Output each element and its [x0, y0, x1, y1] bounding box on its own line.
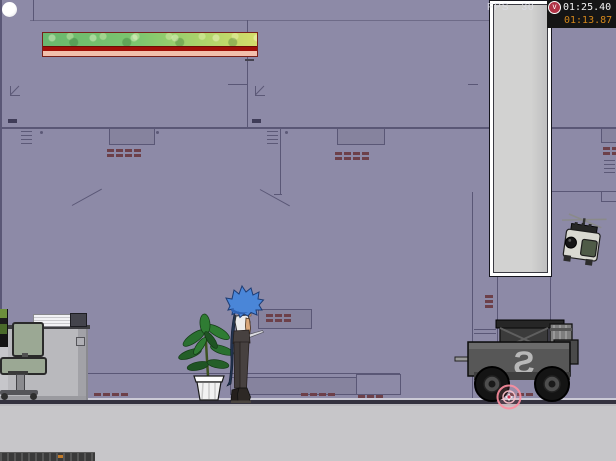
- panel-corner-bracket: [255, 86, 265, 96]
- health-bar-tick: [245, 59, 254, 61]
- wall-recessed-panel: [109, 128, 155, 145]
- wall-vent: [107, 149, 141, 152]
- knife-blade: [249, 331, 264, 338]
- panel-dash: [8, 119, 17, 123]
- hover-drone: [557, 213, 607, 267]
- chair-castor: [30, 393, 37, 400]
- edge-canister: [0, 309, 8, 347]
- conveyor-indicator: [58, 455, 63, 458]
- timer-panel: v 01:25.40 01:13.87: [547, 0, 616, 28]
- player-front-shoe: [238, 388, 251, 402]
- desk-panel-detail: [76, 337, 85, 346]
- clock-toggle-icon[interactable]: v: [548, 1, 561, 14]
- cart-wheel: [535, 367, 569, 401]
- wall-seam: [280, 129, 281, 195]
- wall-seam: [33, 0, 34, 21]
- panel-tick: [468, 84, 478, 85]
- light-column-inner: [493, 4, 548, 273]
- wall-vent: [335, 157, 369, 160]
- game-viewport[interactable]: S FPS30 v 01:25.40 01:13.87: [0, 0, 616, 461]
- wall-recessed-panel: [337, 128, 385, 145]
- wall-vent: [603, 152, 616, 155]
- wall-vent: [603, 147, 616, 150]
- drone-foot: [563, 255, 571, 262]
- wall-vent: [485, 295, 493, 308]
- drone-foot: [585, 259, 593, 266]
- conveyor-strip: [0, 452, 95, 461]
- fps-label: FPS: [487, 2, 509, 13]
- wall-vent: [107, 154, 141, 157]
- wall-notch: [356, 374, 401, 395]
- wall-vent: [335, 152, 369, 155]
- wall-vent: [94, 393, 128, 396]
- player-character: [218, 284, 266, 404]
- wall-notch: [601, 191, 616, 202]
- health-bar-fill: [43, 33, 257, 46]
- panel-dash: [252, 119, 261, 123]
- wall-recessed-panel: [601, 128, 616, 143]
- white-ball: [2, 2, 17, 17]
- wall-grille: [604, 160, 615, 174]
- office-chair-backrest: [12, 322, 44, 357]
- wall-vent: [301, 393, 335, 396]
- chair-castor: [1, 393, 8, 400]
- light-column: [489, 0, 552, 277]
- panel-rivet: [40, 131, 43, 134]
- player-hips: [233, 330, 250, 344]
- timer-primary: 01:25.40: [563, 2, 611, 13]
- target-reticle-icon: [495, 383, 523, 411]
- player-front-leg: [240, 342, 249, 388]
- panel-rivet: [285, 131, 288, 134]
- desk-book: [70, 313, 87, 327]
- wall-grille: [21, 131, 32, 145]
- panel-corner-bracket: [10, 86, 20, 96]
- health-bar: [42, 32, 258, 57]
- panel-tick: [228, 84, 248, 85]
- health-bar-red-stripe: [43, 46, 257, 51]
- wall-grille: [267, 131, 278, 145]
- fps-value: 30: [521, 2, 534, 13]
- wall-vent: [266, 314, 291, 317]
- timer-secondary: 01:13.87: [547, 15, 616, 26]
- fps-counter: FPS30: [487, 2, 535, 13]
- drone-panel: [580, 239, 597, 257]
- wall-seam: [274, 194, 282, 195]
- panel-rivet: [156, 131, 159, 134]
- desk-shadow: [0, 396, 86, 400]
- wall-vent: [266, 319, 291, 322]
